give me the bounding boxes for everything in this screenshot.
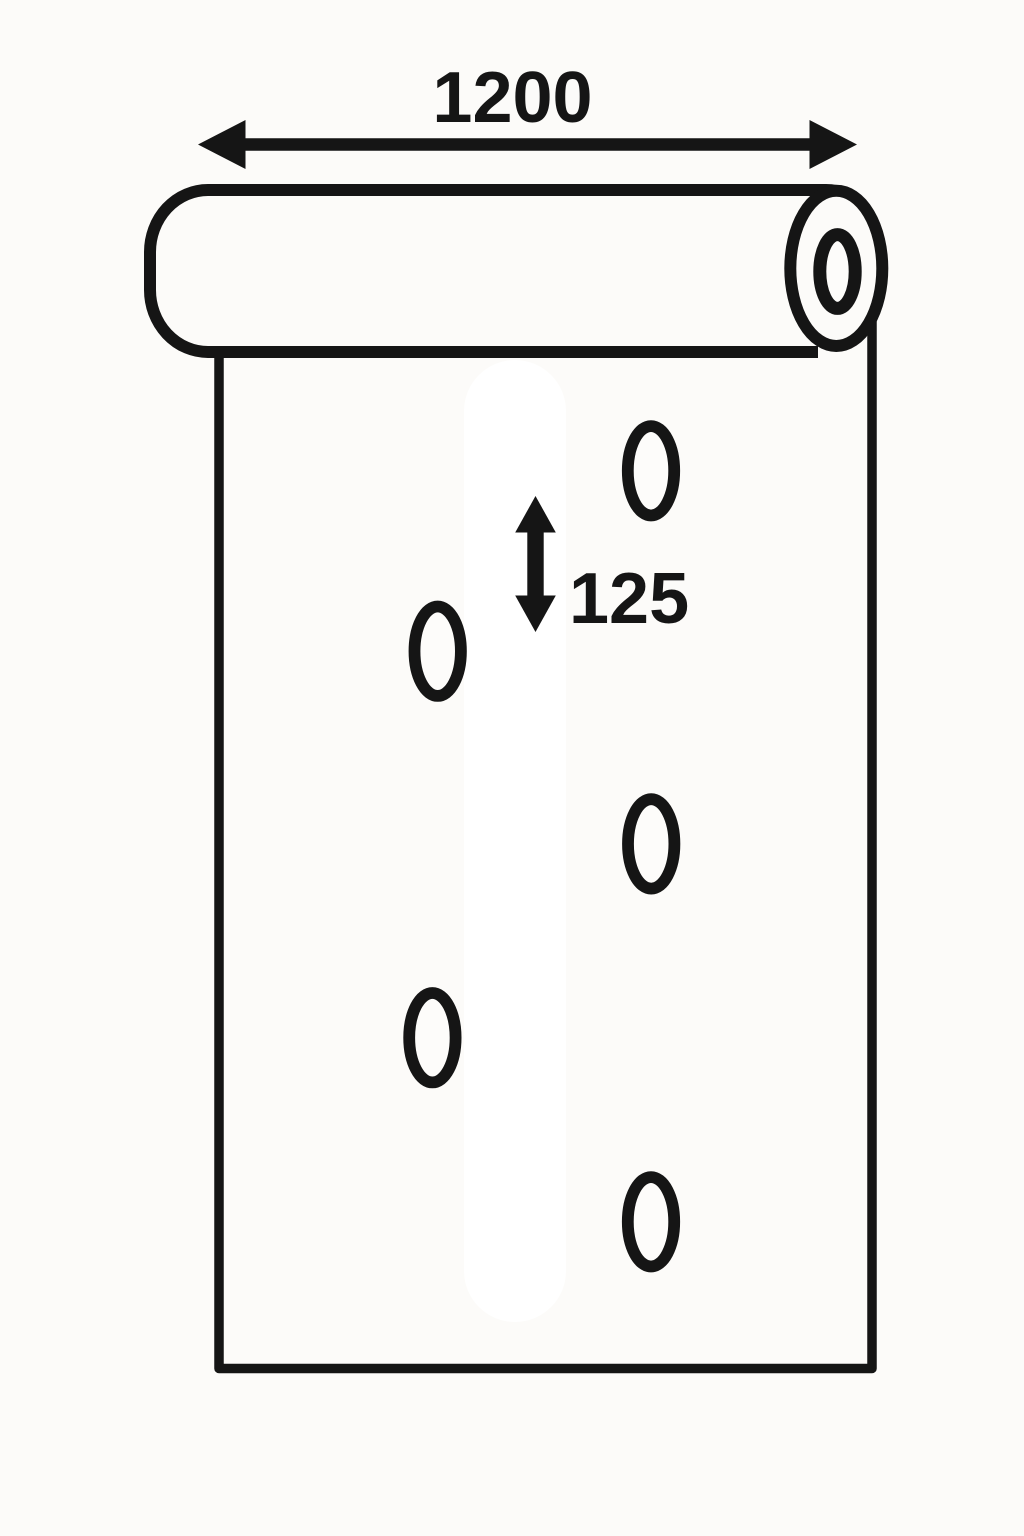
svg-text:1200: 1200 <box>432 58 592 138</box>
svg-text:125: 125 <box>569 559 689 639</box>
